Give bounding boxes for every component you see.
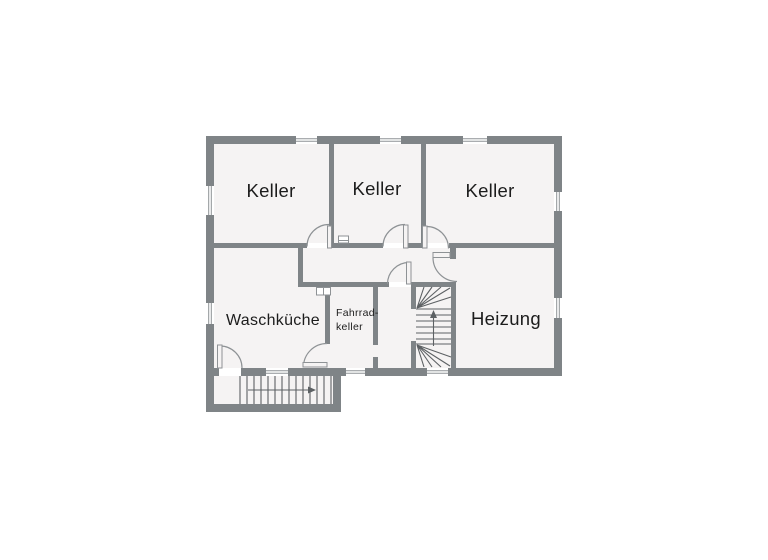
sink-icon xyxy=(339,236,349,243)
window-left-waschkueche xyxy=(206,303,214,324)
wall-bottom-extension xyxy=(206,404,341,412)
window-top-keller3 xyxy=(463,136,487,144)
wall-right xyxy=(554,136,562,376)
window-bottom-stairs xyxy=(266,368,288,376)
window-right-heizung xyxy=(554,298,562,318)
window-top-keller2 xyxy=(380,136,401,144)
wall-corridor-left xyxy=(298,248,303,287)
window-right-keller3 xyxy=(554,192,562,211)
wall-heizung-left xyxy=(451,282,456,368)
wall-heizung-door-stub xyxy=(450,248,456,259)
room-label-keller-1: Keller xyxy=(246,180,295,201)
room-label-fahrradkeller-line2: keller xyxy=(336,321,363,333)
washing-machine-icon xyxy=(324,288,331,296)
wall-corridor-top-left xyxy=(206,243,307,248)
room-label-keller-2: Keller xyxy=(352,178,401,199)
wall-stairwell-top xyxy=(411,282,456,287)
wall-stairwell-left-upper xyxy=(411,287,416,309)
wall-stairwell-left-lower xyxy=(411,341,416,368)
room-label-waschkueche: Waschküche xyxy=(226,312,320,329)
washing-machine-icon xyxy=(317,288,324,296)
wall-fahrradkeller-left xyxy=(325,287,330,344)
room-label-heizung: Heizung xyxy=(471,308,541,329)
basement-floorplan: Keller Keller Keller Waschküche Fahrrad-… xyxy=(0,0,768,560)
window-bottom-mid xyxy=(346,368,365,376)
window-top-keller1 xyxy=(296,136,317,144)
main-floor-area xyxy=(206,136,562,376)
wall-right-extension xyxy=(333,376,341,412)
room-label-keller-3: Keller xyxy=(465,180,514,201)
window-bottom-stairwell xyxy=(427,368,448,376)
room-label-fahrradkeller-line1: Fahrrad- xyxy=(336,307,379,319)
wall-bottom-main xyxy=(206,368,562,376)
wall-corridor-top-mid xyxy=(334,243,383,248)
wall-fahrradkeller-right-stub xyxy=(373,357,378,368)
window-left-keller1 xyxy=(206,186,214,215)
wall-corridor-top-right xyxy=(449,243,554,248)
floorplan-canvas: Keller Keller Keller Waschküche Fahrrad-… xyxy=(0,0,768,560)
wall-corridor-top-mid2 xyxy=(408,243,421,248)
wall-hall-bottom xyxy=(298,282,389,287)
